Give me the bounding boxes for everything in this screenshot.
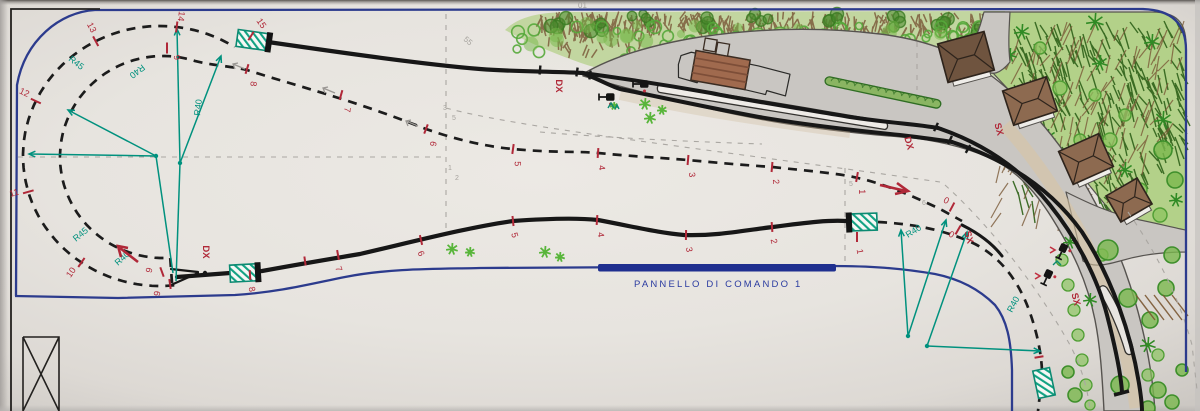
svg-text:PANNELLO DI COMANDO 1: PANNELLO DI COMANDO 1	[634, 279, 803, 290]
svg-text:4: 4	[596, 232, 606, 238]
svg-text:01: 01	[578, 1, 587, 10]
svg-text:6: 6	[922, 200, 926, 207]
svg-text:3: 3	[687, 172, 697, 178]
svg-text:3: 3	[443, 105, 447, 112]
svg-text:R40: R40	[192, 99, 204, 117]
svg-text:7: 7	[342, 107, 352, 113]
svg-text:1: 1	[448, 165, 452, 172]
svg-text:DX: DX	[200, 245, 211, 259]
svg-text:2: 2	[771, 179, 781, 185]
svg-text:5: 5	[849, 181, 853, 188]
svg-text:14: 14	[176, 11, 187, 22]
svg-text:5: 5	[452, 115, 456, 122]
svg-text:4: 4	[597, 165, 607, 171]
svg-text:1: 1	[857, 189, 867, 194]
svg-text:DX: DX	[553, 79, 564, 93]
svg-text:2: 2	[455, 175, 459, 182]
svg-text:5: 5	[513, 161, 523, 166]
